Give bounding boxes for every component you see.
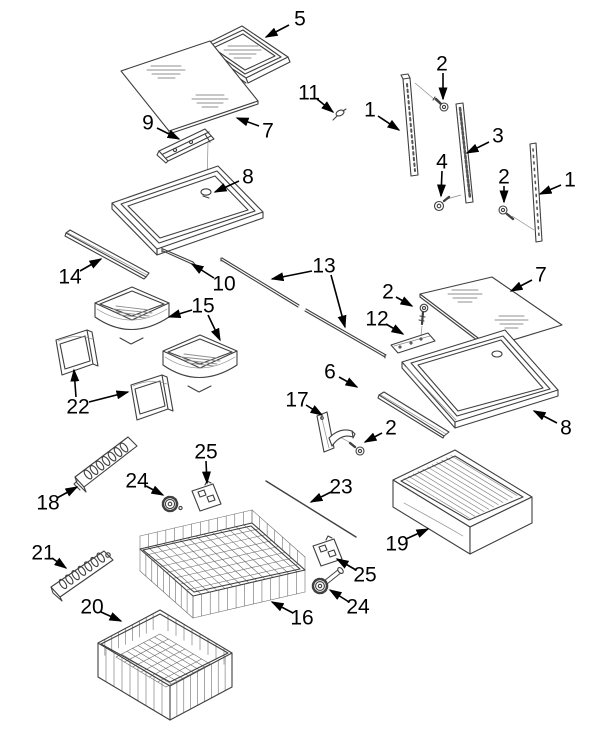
callout-number: 4 [436, 151, 448, 174]
callout-7: 7 [237, 118, 274, 143]
part-20-wire-basket [98, 610, 232, 720]
part-25-bracket-left [192, 481, 221, 511]
callout-15: 15 [169, 295, 220, 341]
callout-11: 11 [298, 82, 333, 113]
callout-25: 25 [194, 441, 217, 484]
callout-number: 16 [290, 607, 313, 630]
part-2-screw-right [499, 206, 513, 219]
callout-2: 2 [382, 281, 412, 307]
part-19-drawer-pan [393, 450, 532, 554]
part-8-shelf-frame-left [112, 166, 263, 255]
part-15-crisper-right [163, 335, 237, 392]
callout-number: 19 [385, 533, 408, 556]
callout-13: 13 [272, 255, 345, 328]
callout-2: 2 [365, 417, 397, 443]
callout-number: 11 [298, 82, 320, 105]
callout-number: 17 [285, 389, 308, 412]
part-2-screw-bottom [350, 443, 364, 455]
callout-23: 23 [311, 476, 353, 503]
part-17-corner-bracket [317, 412, 355, 452]
callout-number: 13 [312, 255, 335, 278]
callout-number: 21 [31, 542, 54, 565]
callout-2: 2 [436, 53, 448, 100]
part-15-crisper-left [95, 287, 169, 344]
part-24-gear-left [163, 497, 182, 511]
callout-number: 8 [560, 417, 572, 440]
callout-number: 1 [564, 169, 576, 192]
callout-number: 14 [58, 266, 82, 289]
callout-12: 12 [365, 308, 403, 335]
callout-number: 1 [364, 99, 376, 122]
part-9-shelf-rail [157, 129, 214, 163]
callout-5: 5 [266, 8, 306, 38]
part-1-rail-right [530, 143, 542, 242]
callout-number: 7 [535, 264, 547, 287]
callout-10: 10 [192, 264, 236, 296]
callout-14: 14 [58, 259, 101, 289]
callout-3: 3 [467, 125, 504, 154]
callout-number: 9 [142, 112, 154, 135]
part-16-wire-rack [140, 510, 305, 618]
part-22-drawer-front-right [131, 375, 173, 420]
part-24-gear-right [313, 566, 344, 593]
callout-number: 20 [80, 596, 103, 619]
callout-number: 23 [329, 476, 352, 499]
callout-number: 18 [36, 492, 59, 515]
callout-number: 12 [365, 308, 388, 331]
callout-number: 7 [262, 120, 274, 143]
part-12-bracket [391, 333, 435, 353]
callout-number: 15 [191, 295, 214, 318]
part-1-rail-left [401, 74, 418, 176]
callout-number: 25 [353, 564, 376, 587]
callout-19: 19 [385, 529, 428, 556]
callout-number: 25 [194, 441, 217, 464]
callout-number: 3 [492, 125, 504, 148]
part-11-clip [333, 109, 346, 120]
callout-6: 6 [324, 361, 357, 388]
part-3-rail-center [456, 103, 473, 203]
parts-diagram: 5798111234211410131522212768172182425231… [0, 0, 609, 729]
callout-16: 16 [272, 602, 314, 630]
callout-24: 24 [125, 470, 163, 496]
callout-number: 2 [385, 417, 397, 440]
callout-24: 24 [330, 590, 370, 619]
callout-number: 2 [498, 166, 510, 189]
callout-7: 7 [511, 264, 547, 292]
callout-2: 2 [498, 166, 510, 203]
callout-number: 24 [346, 596, 370, 619]
callout-4: 4 [436, 151, 448, 197]
callout-number: 5 [294, 8, 306, 31]
callout-number: 6 [324, 361, 336, 384]
callout-number: 8 [242, 166, 254, 189]
callout-1: 1 [364, 99, 399, 131]
callout-20: 20 [80, 596, 121, 622]
callout-21: 21 [31, 542, 66, 569]
callout-1: 1 [540, 169, 576, 195]
callout-number: 2 [382, 281, 394, 304]
part-2-screw-center [419, 304, 428, 324]
part-4-screw [435, 197, 450, 211]
callout-number: 24 [125, 470, 149, 493]
callout-8: 8 [534, 411, 572, 440]
callout-22: 22 [66, 370, 128, 419]
part-25-bracket-right [313, 536, 342, 566]
part-22-drawer-front-left [56, 330, 98, 375]
callout-number: 22 [66, 396, 89, 419]
callout-17: 17 [285, 389, 322, 416]
part-8-shelf-frame-right [402, 330, 558, 428]
part-21-escapement-rack [51, 551, 113, 601]
callout-number: 2 [436, 53, 448, 76]
part-2-screw-top [433, 97, 448, 111]
callout-number: 10 [212, 273, 235, 296]
callout-18: 18 [36, 487, 77, 515]
part-10-rod [162, 248, 197, 268]
